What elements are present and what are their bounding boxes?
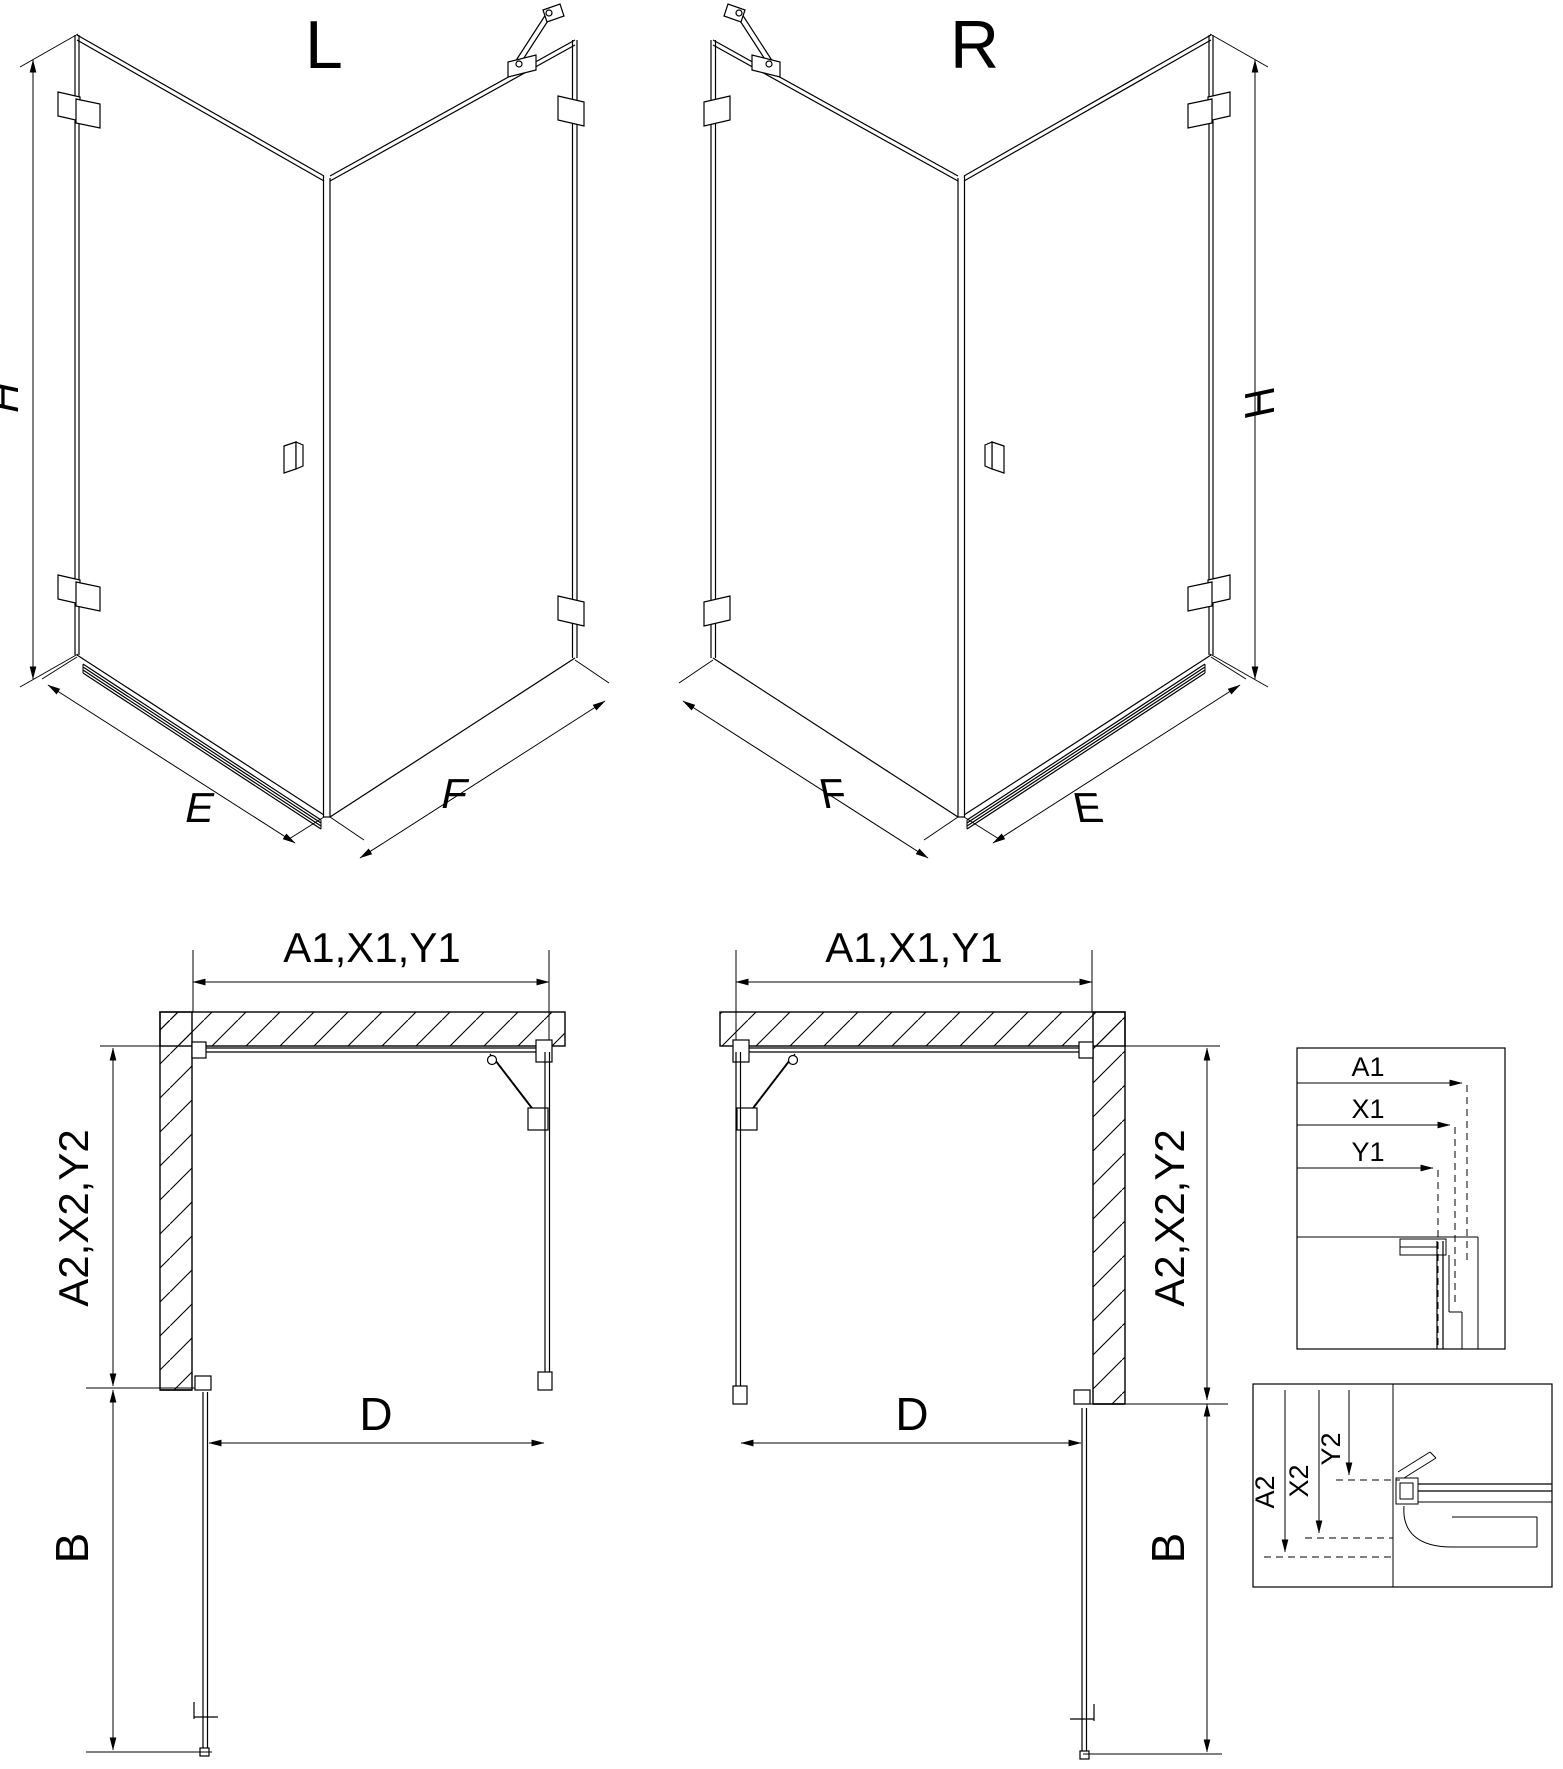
fixed-glass-right-plan: [733, 1052, 747, 1404]
support-bar-left: [508, 4, 564, 77]
door-swing-label-left: B: [46, 1533, 98, 1564]
plan-depth-dimension-left: A2,X2,Y2: [50, 1046, 162, 1386]
door-swing-label-right: B: [1142, 1533, 1194, 1564]
fixed-width-label-right: F: [815, 770, 851, 816]
detail-depth-profile-section: [1396, 1452, 1552, 1547]
height-label-right: H: [1236, 383, 1282, 423]
door-width-label-right: E: [1069, 784, 1107, 830]
door-hinge-lower-left-plate: [76, 582, 100, 611]
iso-view-left: L H: [0, 4, 609, 858]
door-hinge-upper-right-plate: [1188, 99, 1212, 128]
door-hinge-upper-left-plate: [76, 99, 100, 128]
door-hinge-lower-right-plate: [1188, 582, 1212, 611]
open-door-left-plan: [86, 1376, 218, 1756]
side-wall-left-plan: [160, 1012, 192, 1390]
door-panel-left: [75, 35, 324, 815]
plan-depth-dimension-right: A2,X2,Y2: [1123, 1046, 1220, 1400]
detail-box-width: A1 X1 Y1: [1297, 1048, 1505, 1349]
plan-width-label-right: A1,X1,Y1: [825, 924, 1002, 971]
door-opening-label-right: D: [895, 1388, 928, 1440]
door-handle-right: [985, 442, 1004, 473]
iso-view-right: R H: [679, 4, 1283, 858]
plan-view-left: A1,X1,Y1: [46, 924, 565, 1756]
fixed-width-label-left: F: [437, 770, 473, 816]
open-door-right-plan: [1070, 1390, 1228, 1759]
drawing-sheet: L H: [0, 0, 1563, 1769]
fixed-panel-left: [330, 40, 577, 817]
plan-width-label-left: A1,X1,Y1: [283, 924, 460, 971]
wall-bracket-upper-right: [704, 96, 730, 126]
height-label-left: H: [0, 377, 27, 417]
door-width-dimension-left: E: [42, 657, 324, 843]
fixed-width-dimension-right: F: [679, 660, 958, 858]
detail-a2-label: A2: [1250, 1475, 1280, 1508]
support-bar-left-plan: [488, 1054, 549, 1130]
fixed-panel-right: [711, 40, 958, 817]
wall-bracket-lower-right: [704, 596, 730, 626]
detail-x1-label: X1: [1351, 1094, 1384, 1124]
wall-bracket-upper-left: [558, 96, 584, 126]
plan-depth-label-left: A2,X2,Y2: [50, 1129, 97, 1306]
back-wall-left-plan: [160, 1012, 565, 1046]
support-bar-right: [724, 4, 780, 77]
wall-bracket-lower-left: [558, 596, 584, 626]
door-handle-left: [284, 442, 303, 473]
door-swing-dimension-right: B: [1083, 1404, 1222, 1754]
detail-a1-label: A1: [1351, 1052, 1384, 1082]
detail-y1-label: Y1: [1351, 1137, 1384, 1167]
side-wall-right-plan: [1093, 1012, 1125, 1404]
shower-enclosure-technical-drawing: L H: [0, 0, 1563, 1769]
door-panel-right: [964, 35, 1213, 815]
fixed-glass-left-plan: [538, 1052, 552, 1390]
detail-box-depth: A2 X2 Y2: [1250, 1384, 1552, 1587]
support-bar-right-plan: [737, 1054, 798, 1130]
detail-width-profile-section: [1297, 1237, 1478, 1349]
door-opening-dimension-left: D: [209, 1388, 544, 1443]
door-swing-dimension-left: B: [46, 1390, 212, 1752]
door-opening-dimension-right: D: [741, 1388, 1081, 1443]
back-wall-right-plan: [720, 1012, 1125, 1046]
corner-post-right: [958, 176, 965, 817]
variant-label-left: L: [305, 7, 343, 83]
variant-label-right: R: [950, 7, 999, 83]
plan-depth-label-right: A2,X2,Y2: [1146, 1129, 1193, 1306]
door-opening-label-left: D: [359, 1388, 392, 1440]
corner-post-left: [324, 176, 331, 817]
detail-x2-label: X2: [1284, 1464, 1314, 1497]
door-width-label-left: E: [181, 784, 219, 830]
fixed-width-dimension-left: F: [330, 660, 609, 858]
door-width-dimension-right: E: [964, 657, 1246, 843]
detail-y2-label: Y2: [1316, 1432, 1346, 1465]
plan-view-right: A1,X1,Y1: [720, 924, 1228, 1759]
